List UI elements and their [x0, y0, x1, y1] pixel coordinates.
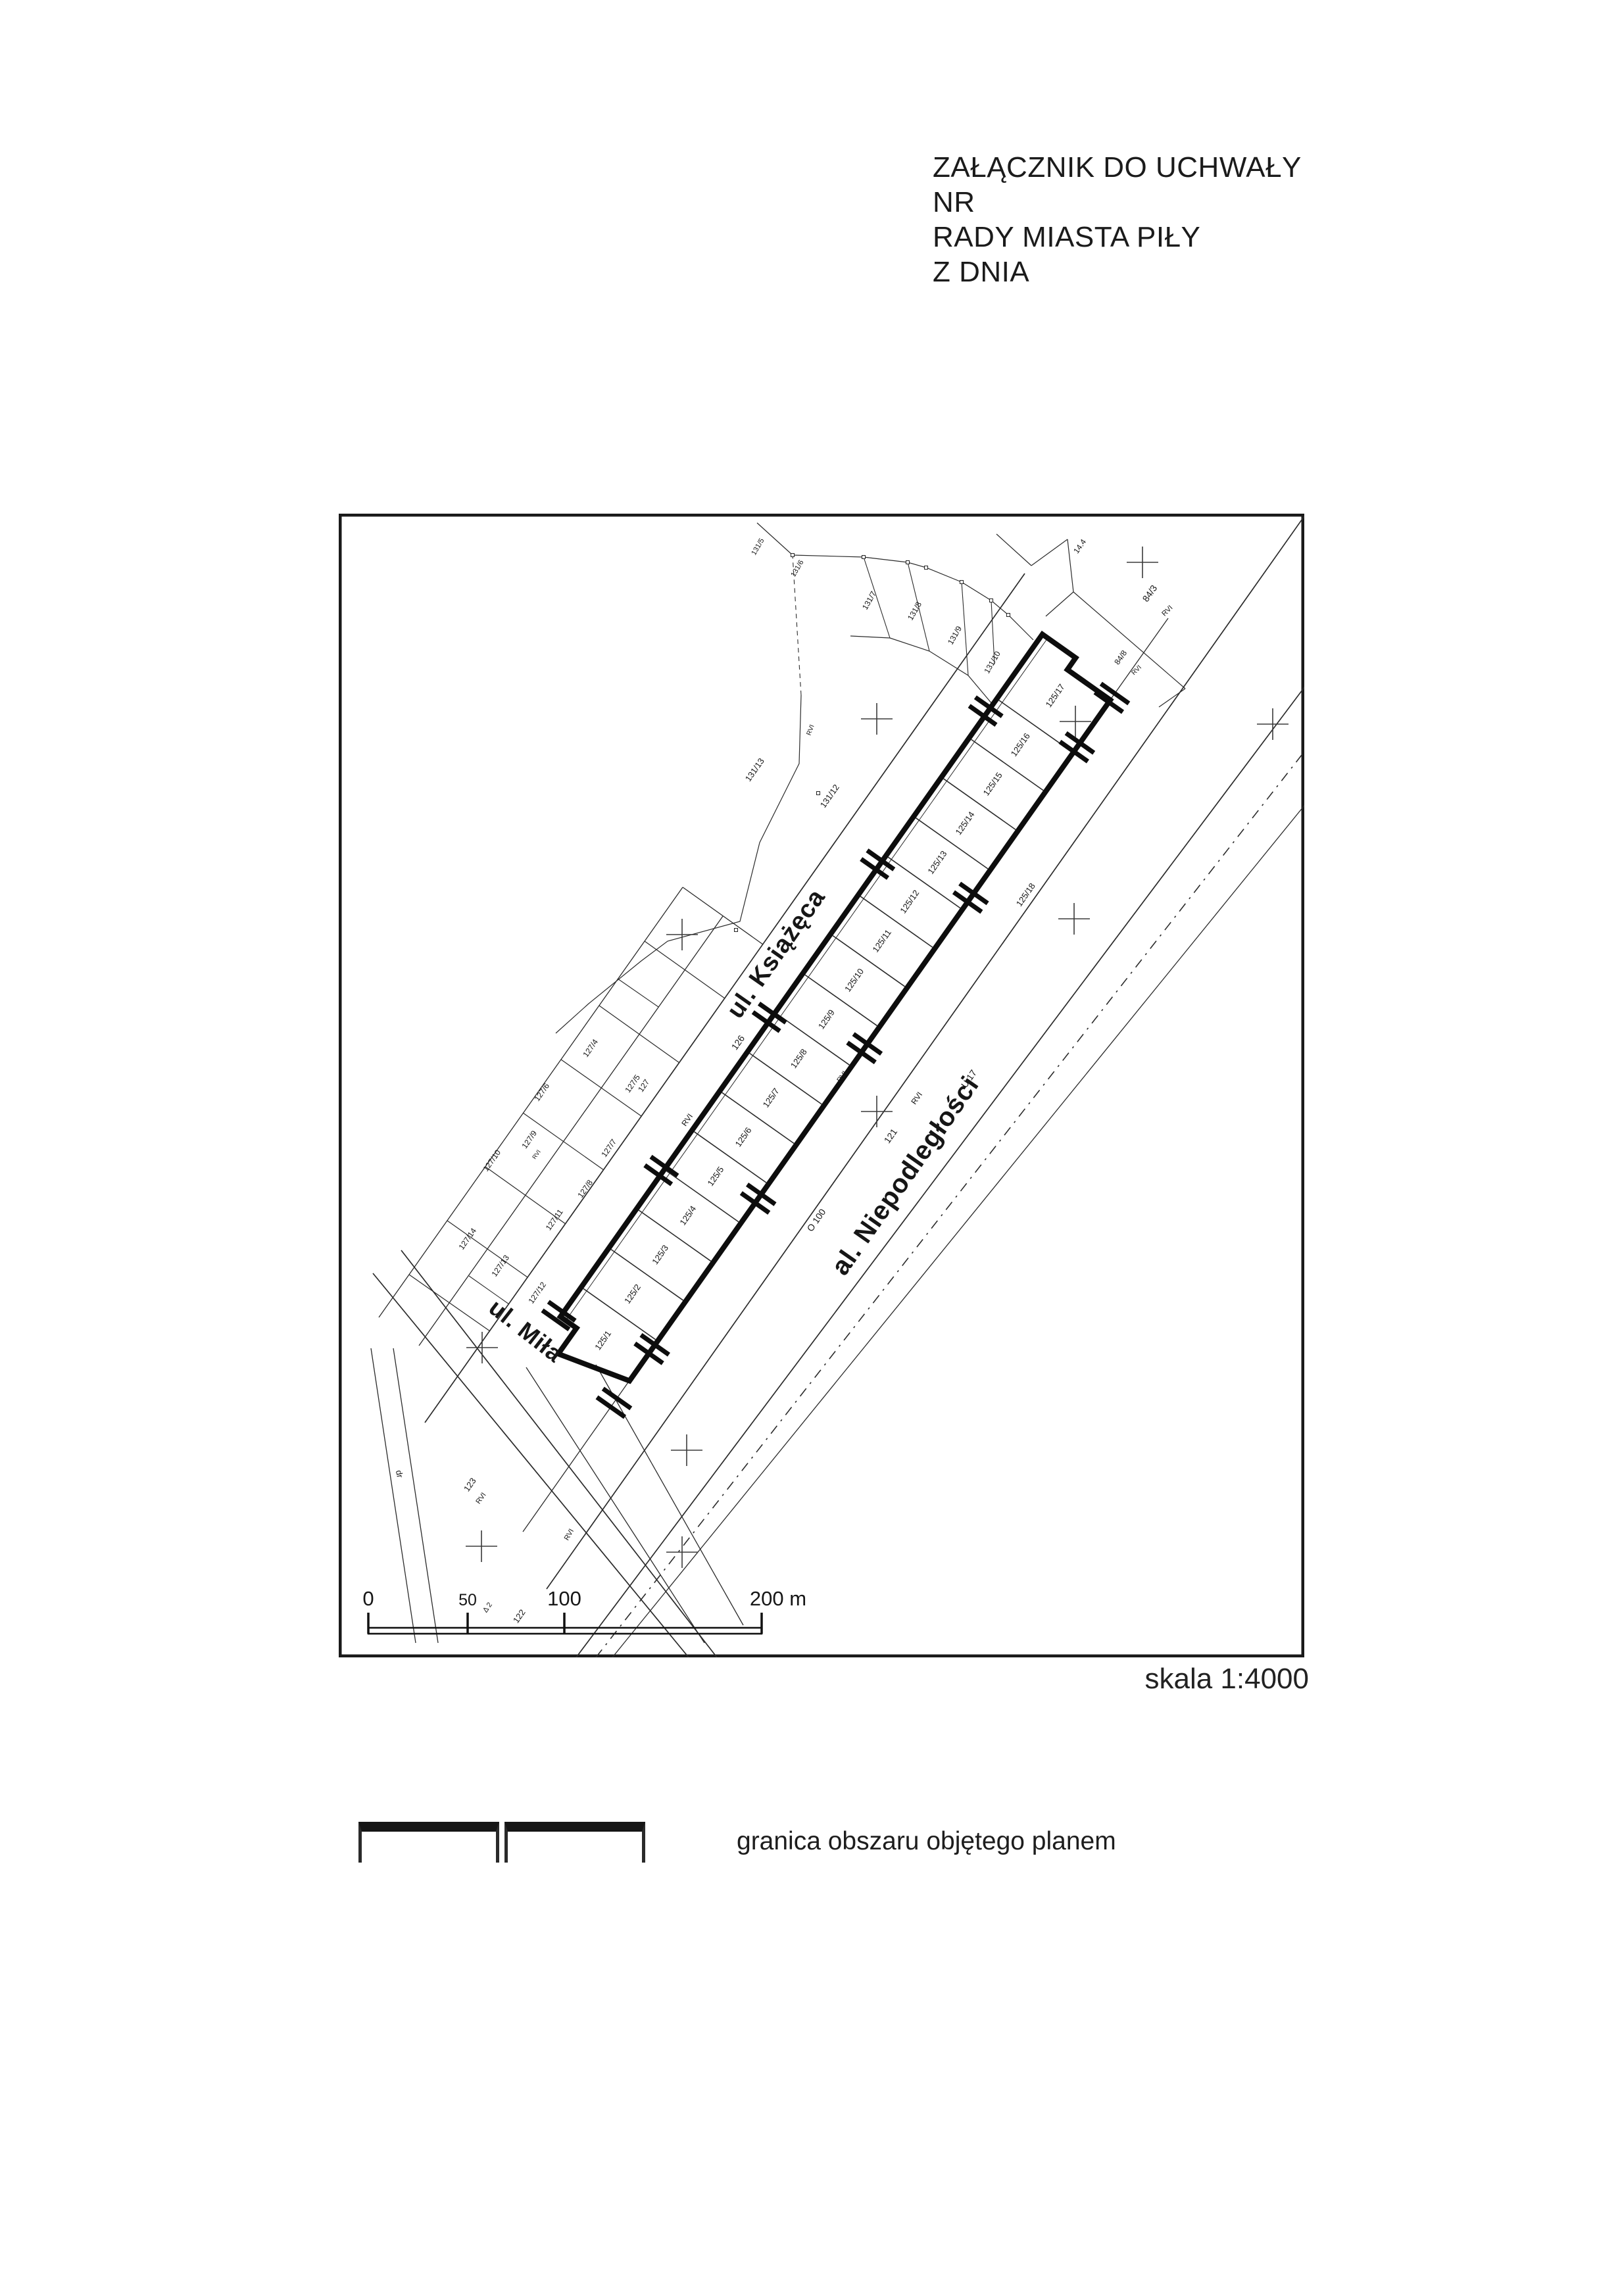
parcel-label: 122	[511, 1607, 528, 1624]
document-page: ZAŁĄCZNIK DO UCHWAŁY NR RADY MIASTA PIŁY…	[0, 0, 1620, 2296]
parcel-label: RVI	[909, 1090, 924, 1106]
parcel-label: RVI	[806, 724, 816, 737]
parcel-label: 127/8	[576, 1178, 595, 1200]
plan-parcel-label: 125/3	[650, 1243, 670, 1266]
parcel-label: 131/10	[982, 649, 1002, 675]
parcel-label: 123	[462, 1476, 478, 1493]
parcel-label: 125/18	[1014, 881, 1037, 908]
parcel-label: Δ 2	[481, 1601, 494, 1614]
plan-map: ul. Książęcaul. Miłaal. Niepodległości12…	[339, 514, 1304, 1657]
plan-boundary-symbol	[504, 1822, 645, 1863]
parcel-label: 131/9	[946, 624, 964, 646]
plan-parcel-label: 125/11	[870, 927, 893, 954]
scale-bar: 050100200 m	[362, 1587, 806, 1634]
plan-parcel-label: 125/13	[925, 849, 948, 876]
plan-parcel-label: 125/9	[816, 1008, 837, 1031]
title-line-3: RADY MIASTA PIŁY	[933, 221, 1200, 253]
scale-bar-tick-label: 100	[547, 1587, 581, 1610]
parcel-label: 131/6	[789, 559, 805, 579]
parcel-label: 127/4	[581, 1037, 600, 1059]
parcel-label: 127/13	[489, 1253, 511, 1278]
scale-bar-tick-label: 200 m	[750, 1587, 806, 1610]
parcel-label: RVI	[1160, 604, 1174, 618]
parcel-label: dr	[394, 1469, 405, 1479]
legend-label: granica obszaru objętego planem	[737, 1827, 1116, 1856]
plan-parcel-label: 125/16	[1009, 731, 1032, 758]
parcel-label: 131/13	[743, 756, 766, 783]
plan-parcel-label: 125/14	[953, 810, 976, 837]
scale-bar-tick-label: 0	[362, 1587, 374, 1610]
plan-boundary-symbol	[358, 1822, 499, 1863]
parcel-label: 14.4	[1071, 537, 1088, 555]
parcel-label: 127/10	[481, 1148, 503, 1173]
title-line-1: ZAŁĄCZNIK DO UCHWAŁY	[933, 151, 1302, 183]
parcel-label: RVI	[474, 1491, 487, 1505]
parcel-label: 127/12	[526, 1280, 548, 1305]
plan-parcel-label: 125/10	[843, 967, 866, 994]
plan-parcel-label: 125/2	[622, 1282, 643, 1306]
title-line-4: Z DNIA	[933, 256, 1029, 288]
parcel-label: 131/5	[750, 537, 766, 557]
parcel-label: 121	[882, 1127, 900, 1145]
parcel-label: RVI	[531, 1148, 542, 1160]
parcel-label: 84/3	[1141, 583, 1160, 604]
plan-parcel-label: 125/7	[761, 1087, 781, 1110]
parcel-label: RVI	[1131, 664, 1143, 677]
parcel-label: 126	[729, 1033, 747, 1052]
parcel-label: 84/8	[1112, 648, 1129, 666]
parcel-label: 131/8	[906, 600, 923, 622]
street-label: al. Niepodległości	[826, 1071, 985, 1281]
parcel-label: 131/12	[818, 783, 841, 810]
parcel-label: 127/6	[532, 1081, 551, 1103]
plan-parcel-label: 125/1	[593, 1329, 613, 1352]
plan-parcel-label: 125/8	[789, 1047, 809, 1070]
plan-parcel-label: 125/4	[677, 1204, 698, 1227]
plan-parcel-label: 125/12	[898, 888, 921, 915]
plan-parcel-label: 125/17	[1044, 682, 1067, 709]
map-scale-note: skala 1:4000	[1033, 1663, 1309, 1696]
parcel-label: RVI	[563, 1528, 576, 1542]
plan-parcel-label: 125/6	[733, 1125, 754, 1148]
plan-parcel-label: 125/15	[981, 770, 1004, 797]
parcel-label: 127/9	[520, 1129, 539, 1150]
plan-parcel-label: 125/5	[705, 1165, 725, 1188]
parcel-label: O 100	[804, 1207, 827, 1234]
scale-bar-tick-label: 50	[458, 1591, 477, 1609]
title-line-2: NR	[933, 186, 975, 218]
parcel-label: 127/7	[599, 1137, 618, 1159]
attachment-title: ZAŁĄCZNIK DO UCHWAŁY NR RADY MIASTA PIŁY…	[933, 150, 1302, 289]
